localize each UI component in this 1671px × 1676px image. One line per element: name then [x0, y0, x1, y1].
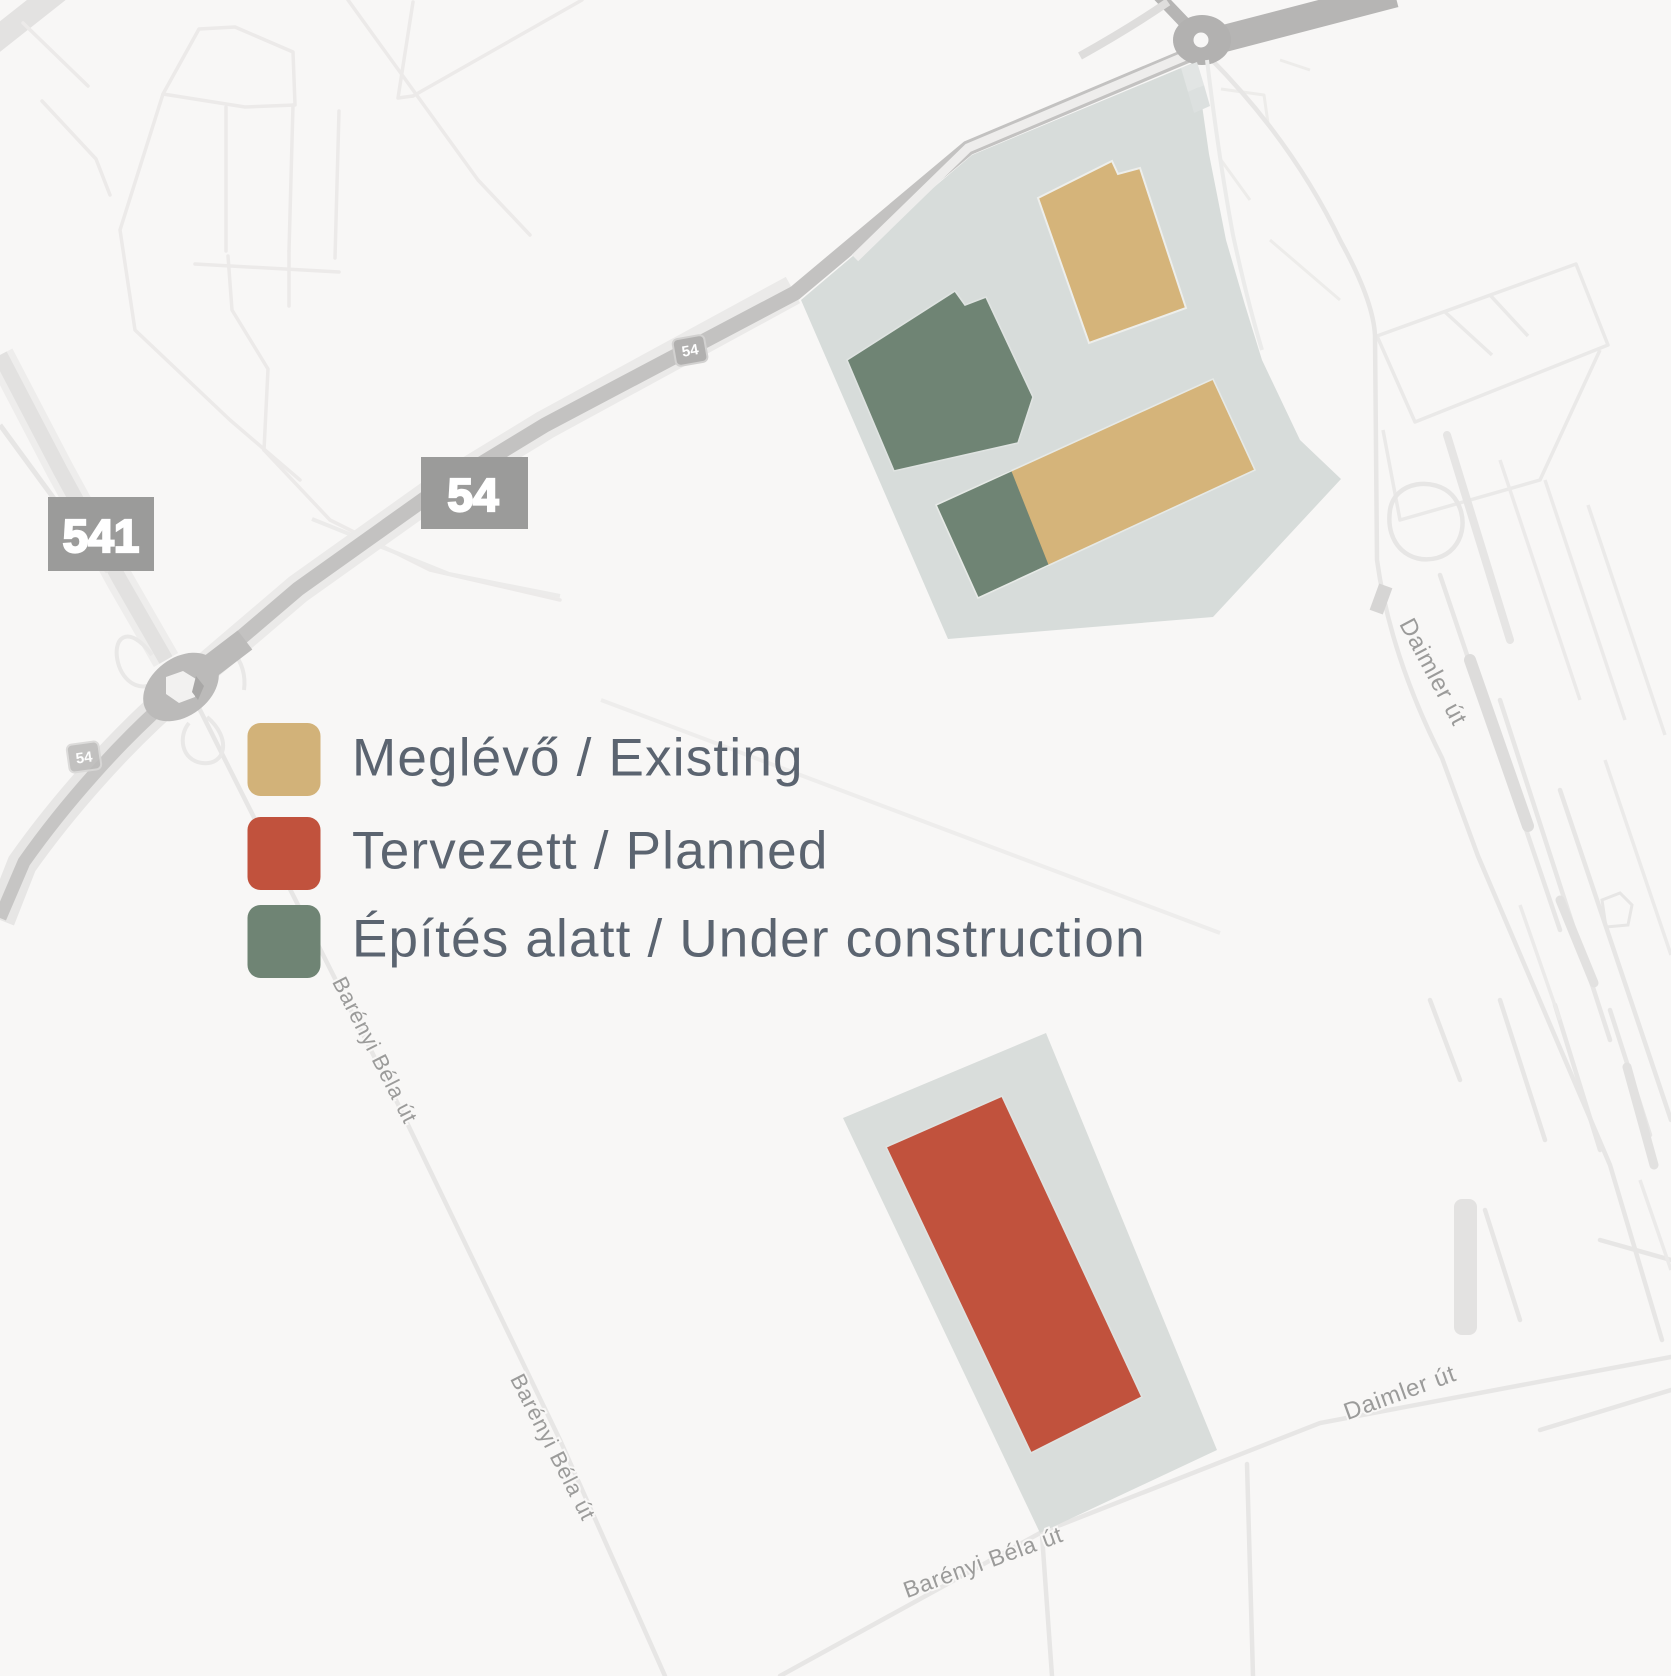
svg-text:Építés alatt / Under construct: Építés alatt / Under construction [352, 910, 1146, 969]
svg-text:54: 54 [447, 469, 499, 521]
svg-text:Tervezett / Planned: Tervezett / Planned [352, 822, 829, 881]
svg-text:541: 541 [63, 510, 140, 562]
svg-text:54: 54 [75, 748, 95, 767]
svg-text:Meglévő / Existing: Meglévő / Existing [352, 729, 804, 788]
